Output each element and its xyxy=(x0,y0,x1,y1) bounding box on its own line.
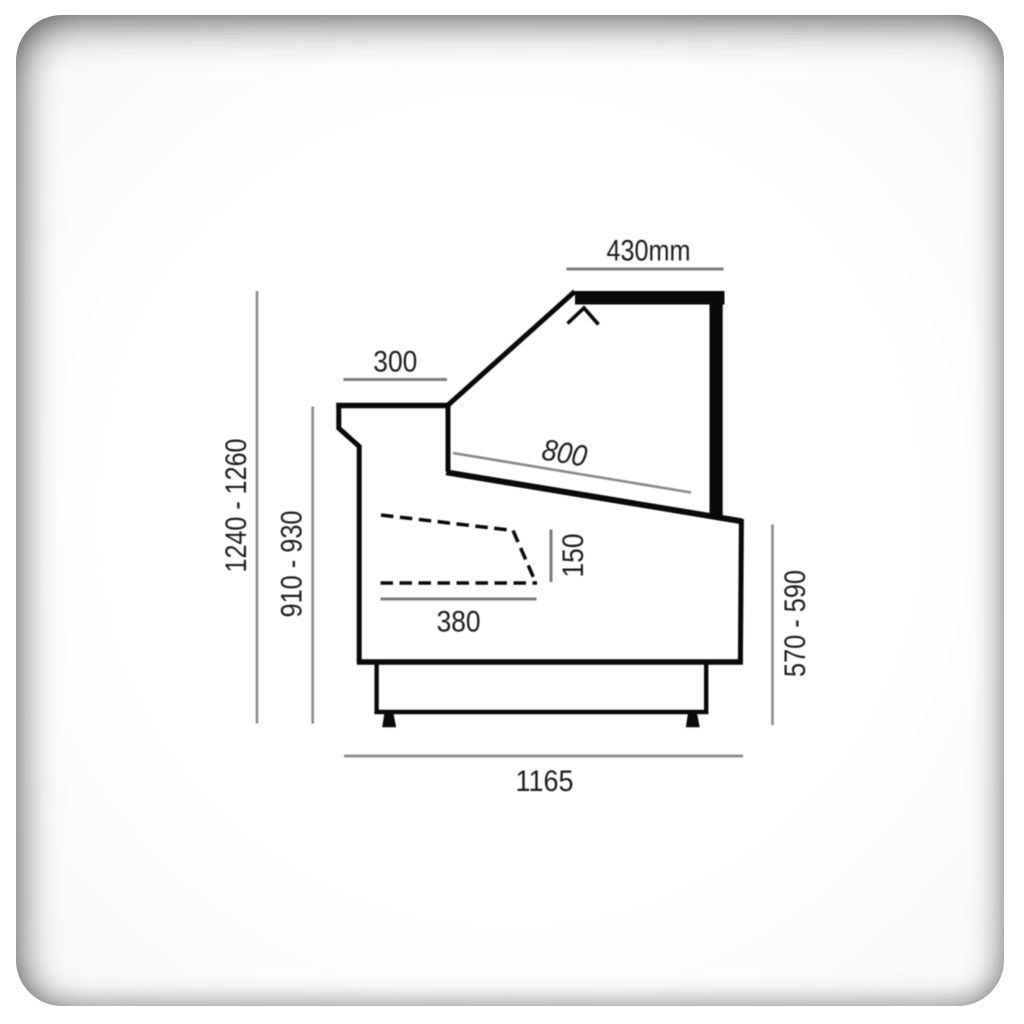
svg-text:1165: 1165 xyxy=(516,765,574,798)
svg-text:300: 300 xyxy=(373,345,417,378)
svg-text:430mm: 430mm xyxy=(607,234,691,267)
svg-text:570 - 590: 570 - 590 xyxy=(779,570,812,677)
svg-text:1240 - 1260: 1240 - 1260 xyxy=(220,439,253,573)
svg-text:380: 380 xyxy=(437,605,481,638)
svg-text:910 - 930: 910 - 930 xyxy=(275,511,308,618)
svg-text:150: 150 xyxy=(557,534,590,578)
